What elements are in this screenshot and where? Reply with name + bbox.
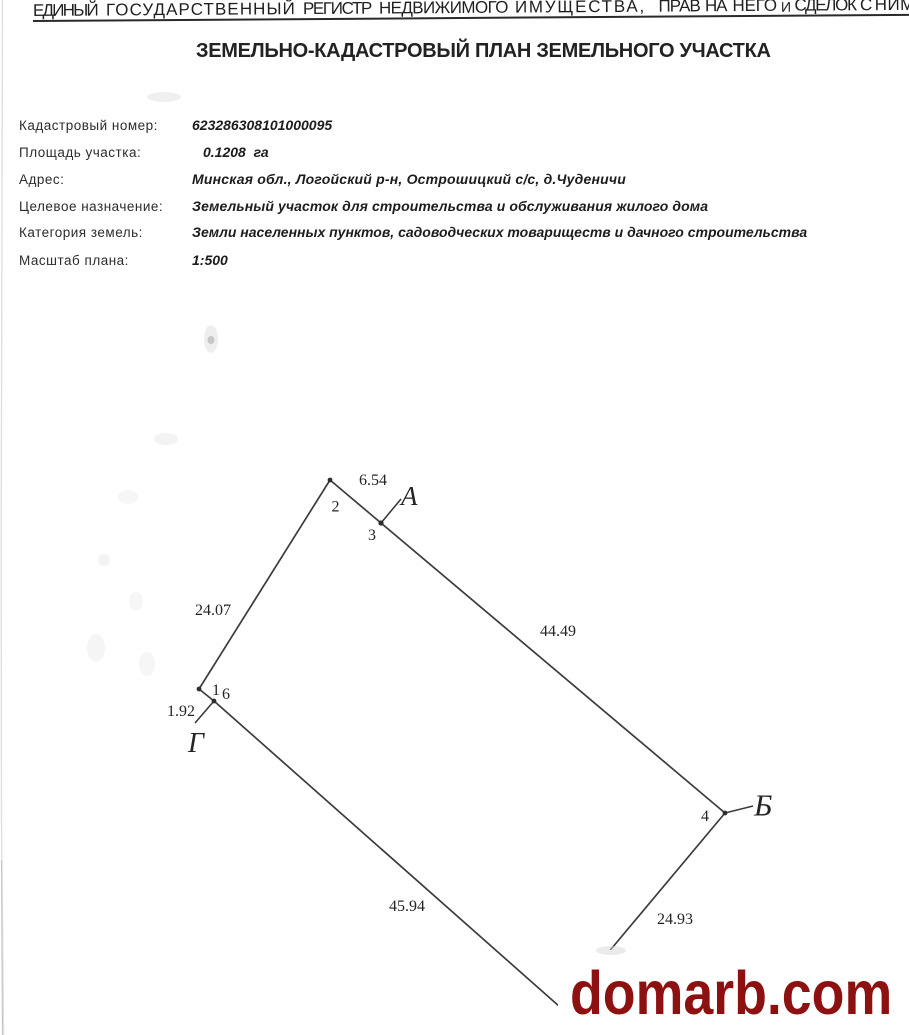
svg-text:6: 6	[222, 686, 230, 703]
svg-text:Б: Б	[753, 788, 772, 823]
svg-text:2: 2	[332, 499, 340, 516]
svg-text:24.93: 24.93	[657, 911, 693, 928]
svg-text:1.92: 1.92	[167, 703, 195, 720]
svg-text:3: 3	[368, 527, 376, 544]
svg-text:1: 1	[212, 682, 220, 699]
svg-text:4: 4	[701, 808, 709, 825]
svg-text:45.94: 45.94	[389, 898, 425, 915]
svg-text:6.54: 6.54	[359, 472, 387, 489]
svg-text:А: А	[399, 481, 418, 511]
svg-text:44.49: 44.49	[540, 623, 576, 640]
svg-text:Г: Г	[187, 728, 205, 759]
svg-text:24.07: 24.07	[195, 602, 231, 619]
